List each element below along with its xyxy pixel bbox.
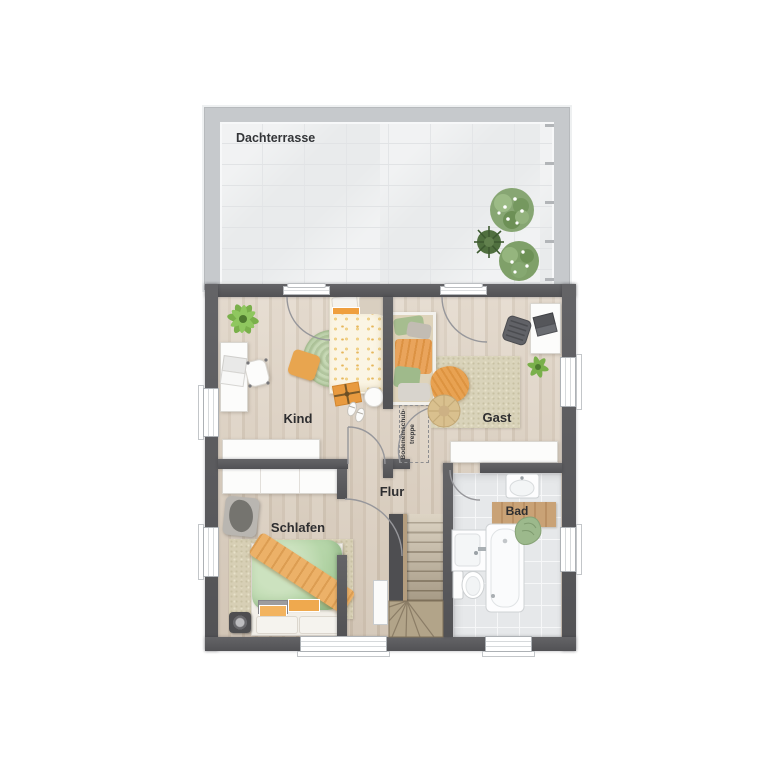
window-sill: [576, 524, 582, 575]
staircase-spine-wall: [389, 514, 407, 601]
outer-wall-left: [205, 284, 218, 651]
terrace-door-handle: [444, 283, 483, 288]
schlafen-speaker: [229, 612, 251, 633]
kind-sideboard: [222, 439, 320, 461]
schlafen-bed-pillow: [299, 616, 339, 634]
outer-wall-top: [205, 284, 576, 297]
terrace-door-kind: [283, 286, 330, 295]
gast-daybed: [390, 312, 436, 405]
window-bad-bottom: [485, 636, 532, 652]
wall-flur-corner-stub: [383, 459, 393, 478]
floor-plan: Dachterrasse Kind Gast Flur Schlafen Bad…: [0, 0, 775, 775]
terrace-door-handle: [287, 283, 326, 288]
window-schlafen-bottom: [300, 636, 387, 652]
bathroom-tile-floor: [453, 473, 561, 637]
kind-bed: [329, 293, 388, 394]
kind-desk: [220, 342, 248, 412]
terrace-wall-tick: [545, 278, 554, 281]
schlafen-bed-pillow: [256, 616, 298, 634]
window-bad-right: [560, 527, 576, 572]
schlafen-bed: [251, 543, 343, 636]
window-schlafen-left: [203, 527, 219, 577]
window-kind-left: [203, 388, 219, 437]
outer-wall-right: [562, 284, 576, 651]
terrace-wall-tick: [545, 240, 554, 243]
wall-gast-bad-right: [480, 463, 562, 473]
terrace-wall-tick: [545, 124, 554, 127]
schlafen-wardrobe: [222, 467, 338, 494]
attic-hatch-label-line1: Bodeneinschub-: [400, 403, 409, 465]
gast-sideboard: [450, 441, 558, 463]
schlafen-chair: [222, 495, 260, 537]
room-label-gast: Gast: [467, 410, 527, 425]
staircase-flight: [407, 514, 443, 601]
attic-hatch-label: Bodeneinschub- treppe: [400, 403, 430, 465]
room-label-terrace: Dachterrasse: [236, 131, 315, 145]
room-label-flur: Flur: [362, 484, 422, 499]
kind-side-table: [364, 387, 384, 407]
wall-kind-flur: [218, 459, 348, 469]
wall-kind-gast: [383, 297, 393, 409]
window-gast-right: [560, 357, 576, 407]
wall-schlafen-flur-upper: [337, 469, 347, 499]
kind-bed-pillow: [359, 296, 385, 316]
terrace-wall-tick: [545, 162, 554, 165]
room-label-schlafen: Schlafen: [258, 520, 338, 535]
attic-hatch-label-line2: treppe: [409, 403, 418, 465]
room-label-bad: Bad: [495, 504, 539, 518]
terrace-door-gast: [440, 286, 487, 295]
wall-flur-bad: [443, 463, 453, 637]
gast-daybed-gray-pillow: [398, 383, 430, 401]
schlafen-bed-orange-pillow: [289, 600, 319, 611]
staircase-door-panel: [373, 580, 388, 625]
wall-schlafen-flur-lower: [337, 555, 347, 637]
gast-desk: [530, 303, 561, 354]
schlafen-chair-clothes: [227, 499, 254, 533]
schlafen-bed-orange-pillow: [260, 606, 286, 616]
terrace-floor: [220, 122, 554, 290]
terrace-wall-tick: [545, 201, 554, 204]
room-label-kind: Kind: [268, 411, 328, 426]
kind-bed-duvet: [330, 314, 386, 392]
gast-daybed-gray-pillow: [406, 321, 432, 340]
window-sill: [576, 354, 582, 410]
